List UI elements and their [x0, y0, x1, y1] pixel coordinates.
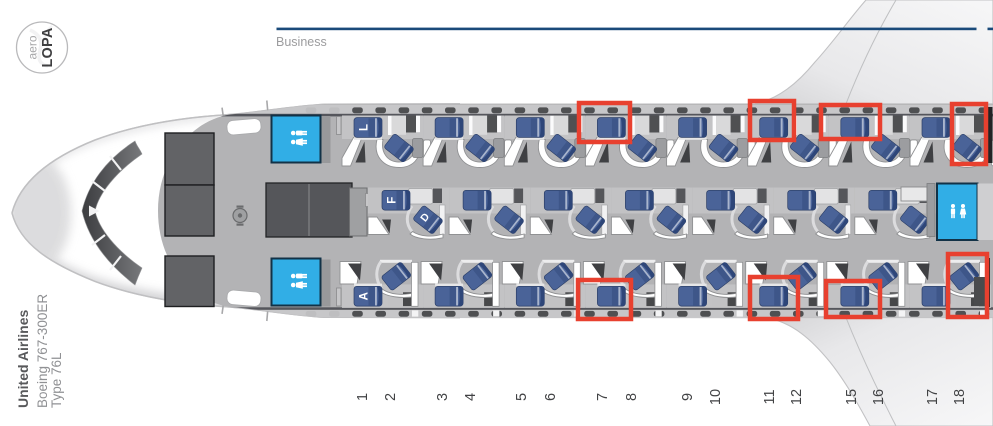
- svg-text:1: 1: [355, 393, 371, 401]
- svg-text:15: 15: [844, 389, 860, 405]
- svg-text:12: 12: [789, 389, 805, 405]
- svg-text:Business: Business: [276, 35, 327, 49]
- svg-text:United Airlines: United Airlines: [15, 310, 31, 408]
- svg-text:3: 3: [435, 393, 451, 401]
- svg-text:2: 2: [383, 393, 399, 401]
- svg-text:aero: aero: [26, 35, 40, 59]
- svg-text:16: 16: [871, 389, 887, 405]
- svg-text:5: 5: [514, 393, 530, 401]
- svg-text:A: A: [359, 292, 371, 300]
- svg-text:18: 18: [952, 389, 968, 405]
- svg-text:F: F: [387, 197, 399, 204]
- svg-text:8: 8: [624, 393, 640, 401]
- svg-text:9: 9: [680, 393, 696, 401]
- svg-text:Boeing 767-300ER: Boeing 767-300ER: [35, 294, 50, 408]
- svg-text:L: L: [359, 124, 371, 131]
- svg-text:LOPA: LOPA: [40, 27, 56, 67]
- svg-text:7: 7: [595, 393, 611, 401]
- svg-text:17: 17: [925, 389, 941, 405]
- svg-text:11: 11: [762, 389, 778, 404]
- svg-text:4: 4: [463, 393, 479, 401]
- svg-text:10: 10: [708, 389, 724, 405]
- svg-text:6: 6: [543, 393, 559, 401]
- svg-text:Type 76L: Type 76L: [49, 352, 64, 408]
